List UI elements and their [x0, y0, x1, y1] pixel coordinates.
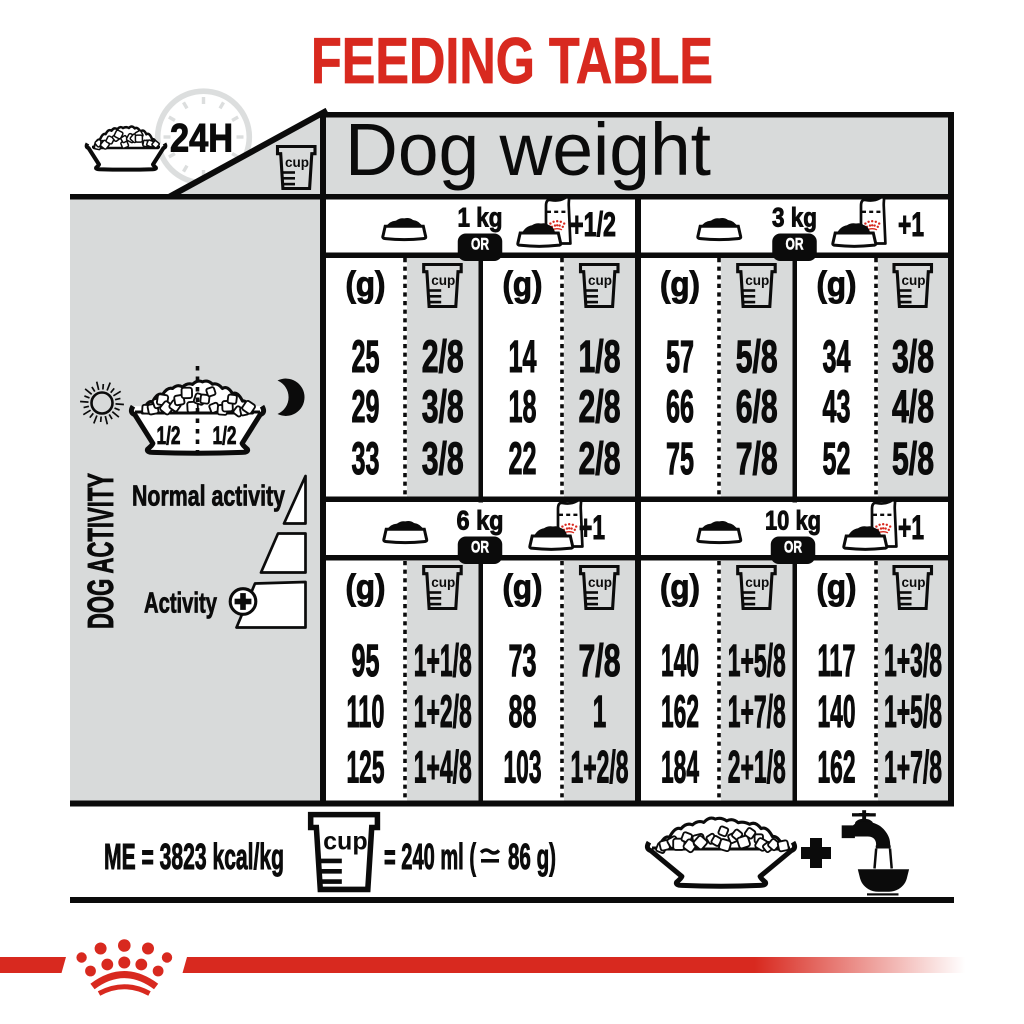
svg-text:103: 103: [504, 742, 542, 793]
svg-text:117: 117: [818, 635, 856, 686]
svg-text:cup: cup: [588, 574, 612, 590]
svg-text:Activity: Activity: [144, 588, 217, 620]
svg-text:73: 73: [509, 635, 537, 686]
svg-text:1+2/8: 1+2/8: [414, 686, 472, 737]
svg-text:1+5/8: 1+5/8: [884, 686, 942, 737]
svg-text:OR: OR: [471, 538, 489, 557]
svg-text:95: 95: [352, 635, 380, 686]
svg-text:18: 18: [509, 381, 537, 432]
svg-text:52: 52: [823, 433, 851, 484]
svg-text:5/8: 5/8: [892, 433, 934, 484]
svg-text:75: 75: [666, 433, 694, 484]
svg-text:22: 22: [509, 433, 537, 484]
svg-text:+1/2: +1/2: [570, 206, 616, 244]
svg-text:34: 34: [823, 331, 851, 382]
svg-text:1+7/8: 1+7/8: [728, 686, 786, 737]
svg-text:= 240 ml (: = 240 ml (: [384, 836, 476, 877]
svg-text:cup: cup: [902, 574, 926, 590]
svg-text:cup: cup: [285, 154, 309, 170]
svg-text:+1: +1: [898, 206, 924, 244]
svg-text:OR: OR: [784, 538, 802, 557]
svg-text:43: 43: [823, 381, 851, 432]
svg-text:1+7/8: 1+7/8: [884, 742, 942, 793]
svg-text:cup: cup: [323, 828, 368, 856]
svg-text:1+4/8: 1+4/8: [414, 742, 472, 793]
svg-text:ME = 3823 kcal/kg: ME = 3823 kcal/kg: [104, 836, 284, 877]
svg-text:4/8: 4/8: [892, 381, 934, 432]
svg-text:29: 29: [352, 381, 380, 432]
svg-text:1 kg: 1 kg: [458, 203, 503, 233]
svg-text:140: 140: [661, 635, 699, 686]
svg-text:(g): (g): [346, 265, 386, 304]
svg-text:cup: cup: [745, 272, 769, 288]
svg-text:162: 162: [818, 742, 856, 793]
svg-text:1/8: 1/8: [579, 331, 621, 382]
svg-text:DOG ACTIVITY: DOG ACTIVITY: [80, 473, 121, 629]
svg-text:110: 110: [347, 686, 385, 737]
svg-text:1/2: 1/2: [213, 422, 237, 450]
svg-text:FEEDING TABLE: FEEDING TABLE: [311, 24, 713, 97]
svg-text:cup: cup: [588, 272, 612, 288]
svg-text:162: 162: [661, 686, 699, 737]
svg-text:10 kg: 10 kg: [765, 506, 821, 536]
svg-text:cup: cup: [745, 574, 769, 590]
svg-text:6 kg: 6 kg: [457, 506, 504, 536]
svg-text:+1: +1: [898, 509, 924, 547]
svg-text:25: 25: [352, 331, 380, 382]
svg-text:1+1/8: 1+1/8: [414, 635, 472, 686]
svg-text:86 g): 86 g): [508, 836, 556, 877]
svg-text:88: 88: [509, 686, 537, 737]
svg-text:3/8: 3/8: [422, 433, 464, 484]
svg-text:OR: OR: [471, 235, 489, 254]
svg-text:(g): (g): [817, 568, 857, 607]
svg-text:57: 57: [666, 331, 694, 382]
svg-text:24H: 24H: [170, 117, 233, 161]
svg-text:1/2: 1/2: [157, 422, 181, 450]
svg-text:3/8: 3/8: [892, 331, 934, 382]
svg-text:140: 140: [818, 686, 856, 737]
svg-text:(g): (g): [503, 568, 543, 607]
svg-text:3 kg: 3 kg: [772, 203, 817, 233]
svg-text:OR: OR: [786, 235, 804, 254]
svg-text:(g): (g): [660, 568, 700, 607]
svg-text:125: 125: [347, 742, 385, 793]
svg-text:1+5/8: 1+5/8: [728, 635, 786, 686]
svg-text:66: 66: [666, 381, 694, 432]
svg-text:Dog weight: Dog weight: [345, 108, 711, 191]
svg-text:+1: +1: [579, 509, 605, 547]
svg-text:2+1/8: 2+1/8: [728, 742, 786, 793]
svg-text:cup: cup: [902, 272, 926, 288]
svg-text:6/8: 6/8: [736, 381, 778, 432]
svg-text:2/8: 2/8: [579, 433, 621, 484]
svg-text:1+3/8: 1+3/8: [884, 635, 942, 686]
svg-text:3/8: 3/8: [422, 381, 464, 432]
svg-text:cup: cup: [431, 272, 455, 288]
svg-text:33: 33: [352, 433, 380, 484]
svg-text:14: 14: [509, 331, 537, 382]
svg-text:Normal activity: Normal activity: [132, 481, 285, 513]
svg-text:7/8: 7/8: [579, 635, 621, 686]
svg-text:2/8: 2/8: [579, 381, 621, 432]
svg-text:(g): (g): [817, 265, 857, 304]
svg-text:2/8: 2/8: [422, 331, 464, 382]
svg-text:5/8: 5/8: [736, 331, 778, 382]
svg-text:1: 1: [593, 686, 607, 737]
svg-text:(g): (g): [346, 568, 386, 607]
svg-text:(g): (g): [660, 265, 700, 304]
svg-text:(g): (g): [503, 265, 543, 304]
svg-text:184: 184: [661, 742, 699, 793]
svg-text:7/8: 7/8: [736, 433, 778, 484]
svg-text:1+2/8: 1+2/8: [571, 742, 629, 793]
svg-text:cup: cup: [431, 574, 455, 590]
